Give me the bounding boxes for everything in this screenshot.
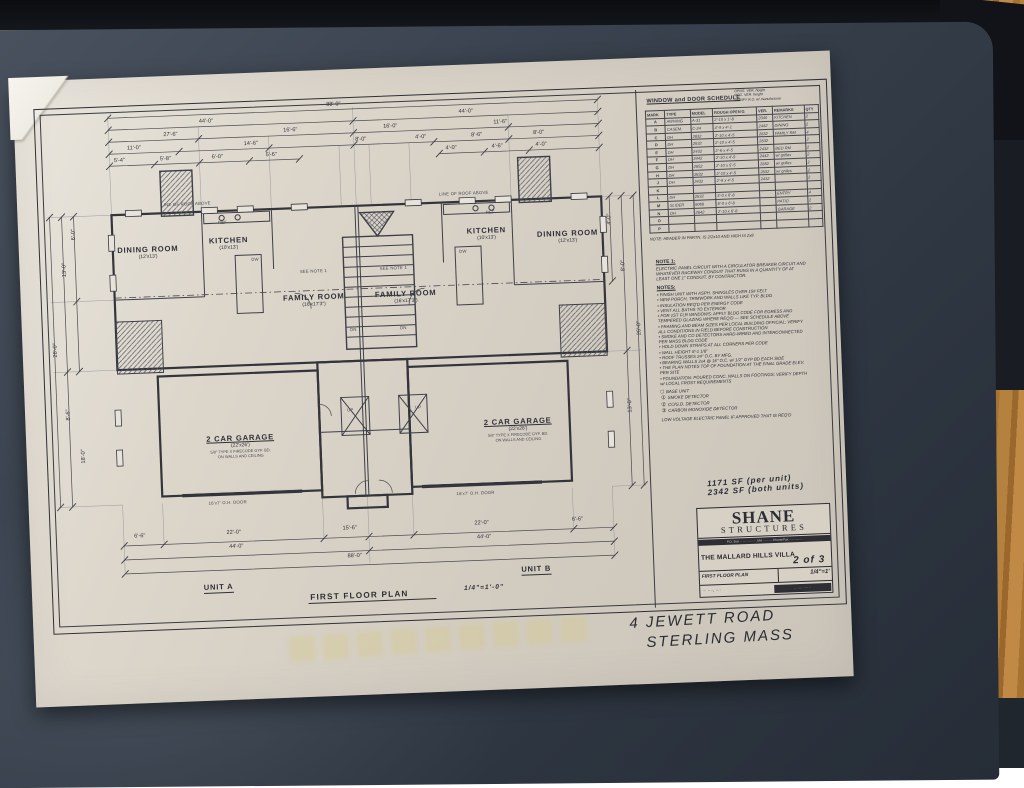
schedule-footnote: NOTE: HEADER IN PARTN. IS 2/2x10 AND HIG… bbox=[650, 233, 754, 242]
plan-annotation: UP bbox=[415, 404, 422, 409]
dimension-label: 14'-6" bbox=[244, 141, 258, 148]
drawing-scale: 1/4"=1' bbox=[777, 567, 832, 582]
dimension-label-vertical: 8'-0" bbox=[620, 260, 626, 271]
dimension-label: 88'-0" bbox=[326, 101, 340, 108]
dimension-label: 11'-0" bbox=[127, 145, 141, 152]
legend-symbol: ① bbox=[661, 395, 666, 401]
footer-right: ·· ···· ······ bbox=[774, 582, 831, 592]
schedule-cell-ver bbox=[761, 220, 777, 228]
legend-text: SMOKE DETECTOR bbox=[668, 394, 709, 401]
legend-symbol: ② bbox=[661, 402, 666, 408]
dimension-label-vertical: 18'-0" bbox=[81, 449, 88, 463]
sheet-number: 2 of 3 bbox=[793, 554, 826, 566]
dimension-label: 44'-0" bbox=[459, 108, 473, 115]
project-name: THE MALLARD HILLS VILLA bbox=[701, 551, 795, 562]
dimension-label: 4'-0" bbox=[415, 134, 426, 140]
room-label: KITCHEN (10'x13') bbox=[192, 234, 265, 252]
dimension-label: 6'-0" bbox=[212, 154, 223, 160]
dimension-label: 8'-6" bbox=[471, 132, 482, 138]
plan-annotation: SEE NOTE 1 bbox=[380, 265, 407, 271]
dimension-label-vertical: 13'-0" bbox=[61, 263, 68, 277]
plan-annotation: DN bbox=[400, 325, 407, 330]
unit-a-label: UNIT A bbox=[204, 582, 234, 594]
right-panel: WINDOW and DOOR SCHEDULE OPNG. VER. heig… bbox=[635, 83, 844, 608]
schedule-cell-remarks bbox=[777, 219, 809, 228]
dimension-label: 5'-8" bbox=[160, 156, 171, 162]
handwritten-address: 4 JEWETT ROAD STERLING MASS bbox=[629, 605, 795, 654]
dimension-label: 8'-0" bbox=[533, 130, 544, 136]
dimension-label: 6'-6" bbox=[134, 533, 145, 539]
schedule-cell-rough bbox=[717, 221, 761, 230]
dimension-label: 4'-0" bbox=[535, 141, 546, 147]
plan-annotation: REF bbox=[486, 210, 495, 215]
dimension-label-vertical: 8'-6" bbox=[65, 409, 71, 420]
desk-scene: DINING ROOM (12'x13') KITCHEN (10'x13') … bbox=[0, 0, 1024, 768]
room-label: FAMILY ROOM (16'x17'3") bbox=[365, 287, 448, 305]
plan-annotation: DW bbox=[251, 257, 259, 262]
dimension-label-vertical: 26'-0" bbox=[636, 321, 643, 335]
legend-symbol: □ bbox=[661, 389, 664, 395]
dimension-label: 6'-6" bbox=[572, 516, 583, 522]
dimension-label: 4'-6" bbox=[491, 143, 502, 149]
notes-block: NOTE 1: ELECTRIC PANEL CIRCUIT WITH A CI… bbox=[656, 254, 814, 427]
project-row: THE MALLARD HILLS VILLA 2 of 3 bbox=[699, 541, 832, 572]
plan-annotation: DW bbox=[459, 249, 467, 254]
plan-annotation: DN bbox=[350, 327, 357, 332]
dimension-label: 15'-6" bbox=[342, 525, 356, 532]
dimension-label-vertical: 13'-0" bbox=[627, 398, 634, 412]
unit-b-label: UNIT B bbox=[521, 564, 551, 576]
blueprint-paper: DINING ROOM (12'x13') KITCHEN (10'x13') … bbox=[12, 51, 853, 708]
schedule-cell-model bbox=[694, 222, 717, 230]
footer-left: ··· ····, ···· bbox=[700, 583, 773, 597]
dimension-label: 44'-0" bbox=[199, 118, 213, 125]
floor-plan-linework bbox=[37, 90, 656, 625]
legend-symbol: ③ bbox=[661, 408, 666, 414]
plan-annotation: REF bbox=[218, 220, 227, 225]
dimension-label: 5'-4" bbox=[114, 158, 125, 164]
company-logo: SHANE STRUCTURES bbox=[697, 504, 830, 540]
dimension-label: 88'-0" bbox=[348, 553, 362, 560]
dimension-label: 22'-0" bbox=[474, 520, 488, 527]
dimension-label: 11'-6" bbox=[493, 119, 507, 126]
dimension-label: 44'-0" bbox=[229, 543, 243, 550]
schedule-corner-note-line: VERIFY R.O. w/ manufacturer bbox=[734, 96, 781, 102]
window-door-schedule: MARKTYPEMODELROUGH OPEN'GVER.REMARKSQTY … bbox=[645, 104, 824, 233]
plan-annotation: SEE NOTE 1 bbox=[300, 268, 327, 274]
plan-annotation: UP bbox=[347, 407, 354, 412]
legend-text: BASE UNIT bbox=[666, 388, 689, 394]
square-footage-note: 1171 SF (per unit) 2342 SF (both units) bbox=[707, 472, 805, 497]
schedule-cell-type bbox=[669, 223, 695, 232]
dimension-label: 44'-0" bbox=[477, 534, 491, 541]
schedule-cell-qty bbox=[808, 218, 823, 226]
dimension-label: 22'-0" bbox=[227, 529, 241, 536]
dimension-label-vertical: 26'-0" bbox=[52, 343, 59, 357]
schedule-corner-note: OPNG. VER. heightMFG. VER. heightVERIFY … bbox=[734, 87, 781, 102]
room-label: FAMILY ROOM (16'x17'3") bbox=[273, 291, 356, 309]
schedule-cell-mark: P bbox=[650, 224, 670, 232]
dimension-label: 4'-0" bbox=[445, 145, 456, 151]
floor-plan: DINING ROOM (12'x13') KITCHEN (10'x13') … bbox=[37, 90, 656, 625]
dimension-label: 27'-6" bbox=[163, 132, 177, 139]
legend-text: CO/S.D. DETECTOR bbox=[668, 400, 710, 407]
room-label: KITCHEN (10'x13') bbox=[450, 224, 523, 242]
dimension-label: 16'-0" bbox=[383, 123, 397, 130]
schedule-title: WINDOW and DOOR SCHEDULE bbox=[646, 95, 740, 105]
dimension-label: 8'-0" bbox=[355, 136, 366, 142]
dimension-label-vertical: 4'-0" bbox=[606, 213, 612, 224]
dimension-label: 16'-6" bbox=[283, 127, 297, 134]
dimension-label: 5'-6" bbox=[266, 152, 277, 158]
title-block: SHANE STRUCTURES P.O. Box ·· — ········,… bbox=[696, 503, 833, 598]
dimension-label-vertical: 6'-0" bbox=[71, 229, 77, 240]
